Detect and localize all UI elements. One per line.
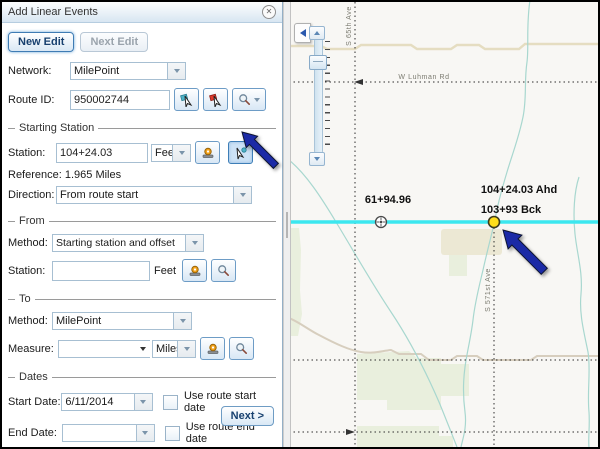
chevron-down-icon — [240, 193, 246, 197]
from-separator: From — [8, 215, 276, 227]
from-method-combo[interactable]: Starting station and offset — [52, 234, 204, 252]
station-input[interactable] — [56, 143, 148, 163]
map-graphics: W Luhman Rd S 65th Ave S 571st Ave 61+94… — [291, 2, 598, 447]
tan-trail-road — [291, 318, 598, 360]
next-edit-button[interactable]: Next Edit — [80, 32, 148, 52]
road-direction-arrow-icon — [346, 429, 355, 435]
from-station-label: Station: — [8, 265, 52, 277]
chevron-down-icon — [254, 98, 260, 102]
from-method-value: Starting station and offset — [53, 235, 185, 251]
measure-units-combo[interactable]: Miles — [152, 340, 196, 358]
zoom-slider-thumb[interactable] — [309, 55, 327, 70]
pick-station-on-map-button[interactable] — [228, 141, 253, 164]
from-locator-button[interactable] — [182, 259, 207, 282]
search-icon — [235, 342, 248, 355]
direction-combo[interactable]: From route start — [56, 186, 252, 204]
splitter-grip-icon — [286, 212, 288, 238]
chevron-down-icon — [179, 151, 185, 155]
end-date-label: End Date: — [8, 427, 62, 439]
app-window: Add Linear Events ✕ New Edit Next Edit N… — [0, 0, 600, 449]
reference-text: Reference: 1.965 Miles — [8, 169, 121, 181]
direction-value: From route start — [57, 187, 233, 203]
station-units-value: Feet — [152, 145, 172, 161]
next-button[interactable]: Next > — [221, 406, 274, 426]
search-icon — [238, 93, 251, 106]
station-locator-icon — [188, 264, 202, 278]
panel-header: Add Linear Events ✕ — [2, 2, 282, 23]
station-units-dropdown-button[interactable] — [172, 145, 190, 161]
chevron-left-icon — [300, 29, 306, 37]
stream-right — [574, 177, 589, 447]
route-search-dropdown-button[interactable] — [232, 88, 266, 111]
network-value: MilePoint — [71, 63, 167, 79]
search-icon — [217, 264, 230, 277]
chevron-down-icon — [192, 241, 198, 245]
from-method-label: Method: — [8, 237, 52, 249]
chevron-down-icon — [184, 347, 190, 351]
to-section-label: To — [19, 293, 31, 305]
start-date-combo[interactable]: 6/11/2014 — [61, 393, 153, 411]
measure-dropdown-button[interactable] — [140, 341, 150, 357]
pick-on-map-cursor-icon — [234, 146, 248, 160]
chevron-down-icon — [180, 319, 186, 323]
measure-units-value: Miles — [153, 341, 177, 357]
end-date-value — [63, 425, 136, 441]
network-label: Network: — [8, 65, 70, 77]
station-label: Station: — [8, 147, 56, 159]
end-date-dropdown-button[interactable] — [136, 425, 154, 441]
dates-section-label: Dates — [19, 371, 48, 383]
from-method-dropdown-button[interactable] — [185, 235, 203, 251]
close-icon[interactable]: ✕ — [262, 5, 276, 19]
station-locator-icon — [206, 342, 220, 356]
station-locator-icon — [201, 146, 215, 160]
panel-body: New Edit Next Edit Network: MilePoint Ro… — [2, 23, 282, 446]
selected-station-point — [489, 217, 500, 228]
measure-units-dropdown-button[interactable] — [177, 341, 195, 357]
station-locator-button[interactable] — [195, 141, 220, 164]
to-separator: To — [8, 293, 276, 305]
panel-splitter[interactable] — [283, 2, 291, 447]
starting-station-separator: Starting Station — [8, 122, 276, 134]
panel-title: Add Linear Events — [8, 6, 262, 18]
start-date-label: Start Date: — [8, 396, 61, 408]
end-date-combo[interactable] — [62, 424, 155, 442]
route-id-input[interactable] — [70, 90, 170, 110]
start-date-dropdown-button[interactable] — [134, 394, 152, 410]
direction-label: Direction: — [8, 189, 56, 201]
from-units-label: Feet — [154, 265, 176, 277]
measure-label: Measure: — [8, 343, 58, 355]
station-labels: 61+94.96 104+24.03 Ahd 103+93 Bck — [365, 184, 557, 216]
measure-combo[interactable] — [58, 340, 150, 358]
from-section-label: From — [19, 215, 45, 227]
measure-locator-button[interactable] — [200, 337, 225, 360]
use-route-start-date-checkbox[interactable]: ✓ — [163, 395, 178, 410]
chevron-down-icon — [140, 400, 146, 404]
station-label-ahead: 104+24.03 Ahd — [481, 184, 557, 196]
select-route-cursor-icon — [180, 93, 194, 107]
dates-separator: Dates — [8, 371, 276, 383]
street-label-vertical-bottom: S 571st Ave — [485, 268, 492, 312]
new-edit-button[interactable]: New Edit — [8, 32, 74, 52]
chevron-down-icon — [314, 157, 320, 161]
to-method-combo[interactable]: MilePoint — [52, 312, 192, 330]
start-date-value: 6/11/2014 — [62, 394, 134, 410]
street-label-vertical-top: S 65th Ave — [346, 6, 353, 46]
network-dropdown-button[interactable] — [167, 63, 185, 79]
measure-value — [59, 341, 140, 357]
chevron-down-icon — [142, 431, 148, 435]
network-combo[interactable]: MilePoint — [70, 62, 186, 80]
use-route-end-date-checkbox[interactable]: ✓ — [165, 426, 180, 441]
starting-station-section-label: Starting Station — [19, 122, 94, 134]
station-units-combo[interactable]: Feet — [151, 144, 191, 162]
direction-dropdown-button[interactable] — [233, 187, 251, 203]
reference-station-marker — [376, 217, 387, 228]
chevron-down-icon — [174, 69, 180, 73]
to-method-value: MilePoint — [53, 313, 173, 329]
chevron-down-icon — [140, 347, 146, 351]
station-label-reference: 61+94.96 — [365, 194, 411, 206]
street-label-horizontal: W Luhman Rd — [398, 74, 449, 81]
from-search-button[interactable] — [211, 259, 236, 282]
route-id-label: Route ID: — [8, 94, 70, 106]
zoom-in-button[interactable] — [309, 26, 325, 40]
zoom-out-button[interactable] — [309, 152, 325, 166]
map-canvas[interactable]: W Luhman Rd S 65th Ave S 571st Ave 61+94… — [291, 2, 598, 447]
beige-road — [291, 44, 598, 49]
measure-search-button[interactable] — [229, 337, 254, 360]
from-station-input[interactable] — [52, 261, 150, 281]
clear-route-selection-button[interactable] — [203, 88, 228, 111]
add-linear-events-panel: Add Linear Events ✕ New Edit Next Edit N… — [2, 2, 283, 447]
to-method-label: Method: — [8, 315, 52, 327]
chevron-up-icon — [314, 31, 320, 35]
clear-selection-cursor-icon — [209, 93, 223, 107]
select-route-button[interactable] — [174, 88, 199, 111]
station-label-back: 103+93 Bck — [481, 204, 542, 216]
to-method-dropdown-button[interactable] — [173, 313, 191, 329]
street-labels: W Luhman Rd S 65th Ave S 571st Ave — [346, 6, 492, 312]
